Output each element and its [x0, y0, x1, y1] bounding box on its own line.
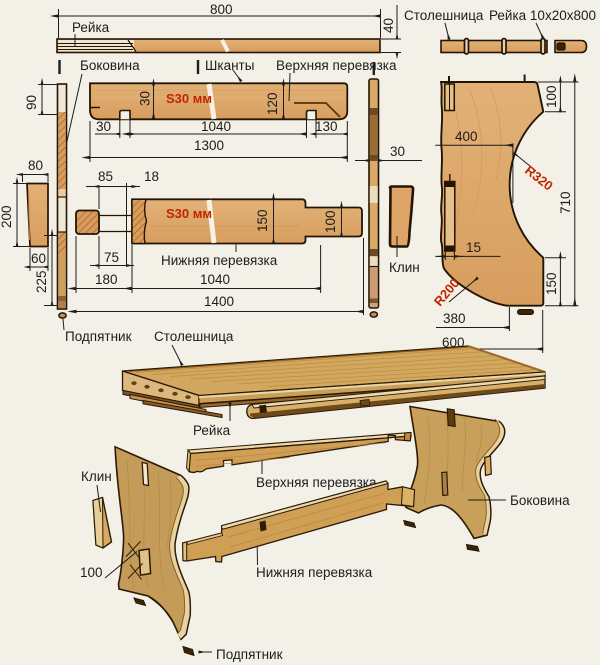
- svg-text:Столешница: Столешница: [154, 329, 234, 344]
- svg-text:Подпятник: Подпятник: [65, 329, 132, 344]
- svg-text:1300: 1300: [194, 138, 224, 153]
- svg-text:710: 710: [558, 191, 573, 214]
- svg-text:1400: 1400: [204, 294, 234, 309]
- svg-text:S30 мм: S30 мм: [166, 206, 212, 221]
- svg-text:Подпятник: Подпятник: [216, 647, 283, 662]
- svg-text:150: 150: [544, 272, 559, 295]
- svg-text:380: 380: [443, 311, 466, 326]
- svg-text:Боковина: Боковина: [80, 58, 140, 73]
- svg-text:85: 85: [98, 169, 113, 184]
- svg-text:15: 15: [466, 240, 481, 255]
- svg-text:30: 30: [96, 119, 111, 134]
- svg-text:150: 150: [255, 209, 270, 232]
- svg-text:90: 90: [24, 95, 39, 110]
- svg-text:225: 225: [34, 270, 49, 293]
- svg-text:130: 130: [315, 119, 338, 134]
- svg-text:100: 100: [323, 210, 338, 233]
- svg-text:Шканты: Шканты: [205, 58, 254, 73]
- svg-text:40: 40: [381, 18, 396, 33]
- svg-text:Верхняя перевязка: Верхняя перевязка: [276, 58, 397, 73]
- svg-text:Клин: Клин: [81, 469, 112, 484]
- svg-text:100: 100: [544, 85, 559, 108]
- svg-text:S30 мм: S30 мм: [166, 91, 212, 106]
- svg-text:75: 75: [104, 250, 119, 265]
- svg-text:200: 200: [0, 205, 14, 228]
- svg-text:Рейка 10х20х800: Рейка 10х20х800: [489, 8, 596, 23]
- svg-text:Рейка: Рейка: [193, 423, 231, 438]
- svg-text:1040: 1040: [200, 272, 230, 287]
- svg-text:30: 30: [138, 91, 153, 106]
- svg-text:1040: 1040: [201, 119, 231, 134]
- svg-text:180: 180: [95, 272, 118, 287]
- svg-text:Боковина: Боковина: [510, 493, 570, 508]
- svg-text:Рейка: Рейка: [72, 20, 110, 35]
- svg-text:100: 100: [80, 565, 103, 580]
- svg-text:Нижняя перевязка: Нижняя перевязка: [256, 565, 373, 580]
- svg-text:800: 800: [210, 2, 233, 17]
- svg-text:120: 120: [265, 92, 280, 115]
- svg-text:Нижняя перевязка: Нижняя перевязка: [161, 253, 278, 268]
- svg-text:80: 80: [28, 158, 43, 173]
- svg-text:18: 18: [144, 169, 159, 184]
- svg-text:Клин: Клин: [389, 260, 420, 275]
- svg-text:60: 60: [31, 251, 46, 266]
- svg-text:Столешница: Столешница: [404, 8, 484, 23]
- svg-text:30: 30: [390, 144, 405, 159]
- svg-text:400: 400: [455, 129, 478, 144]
